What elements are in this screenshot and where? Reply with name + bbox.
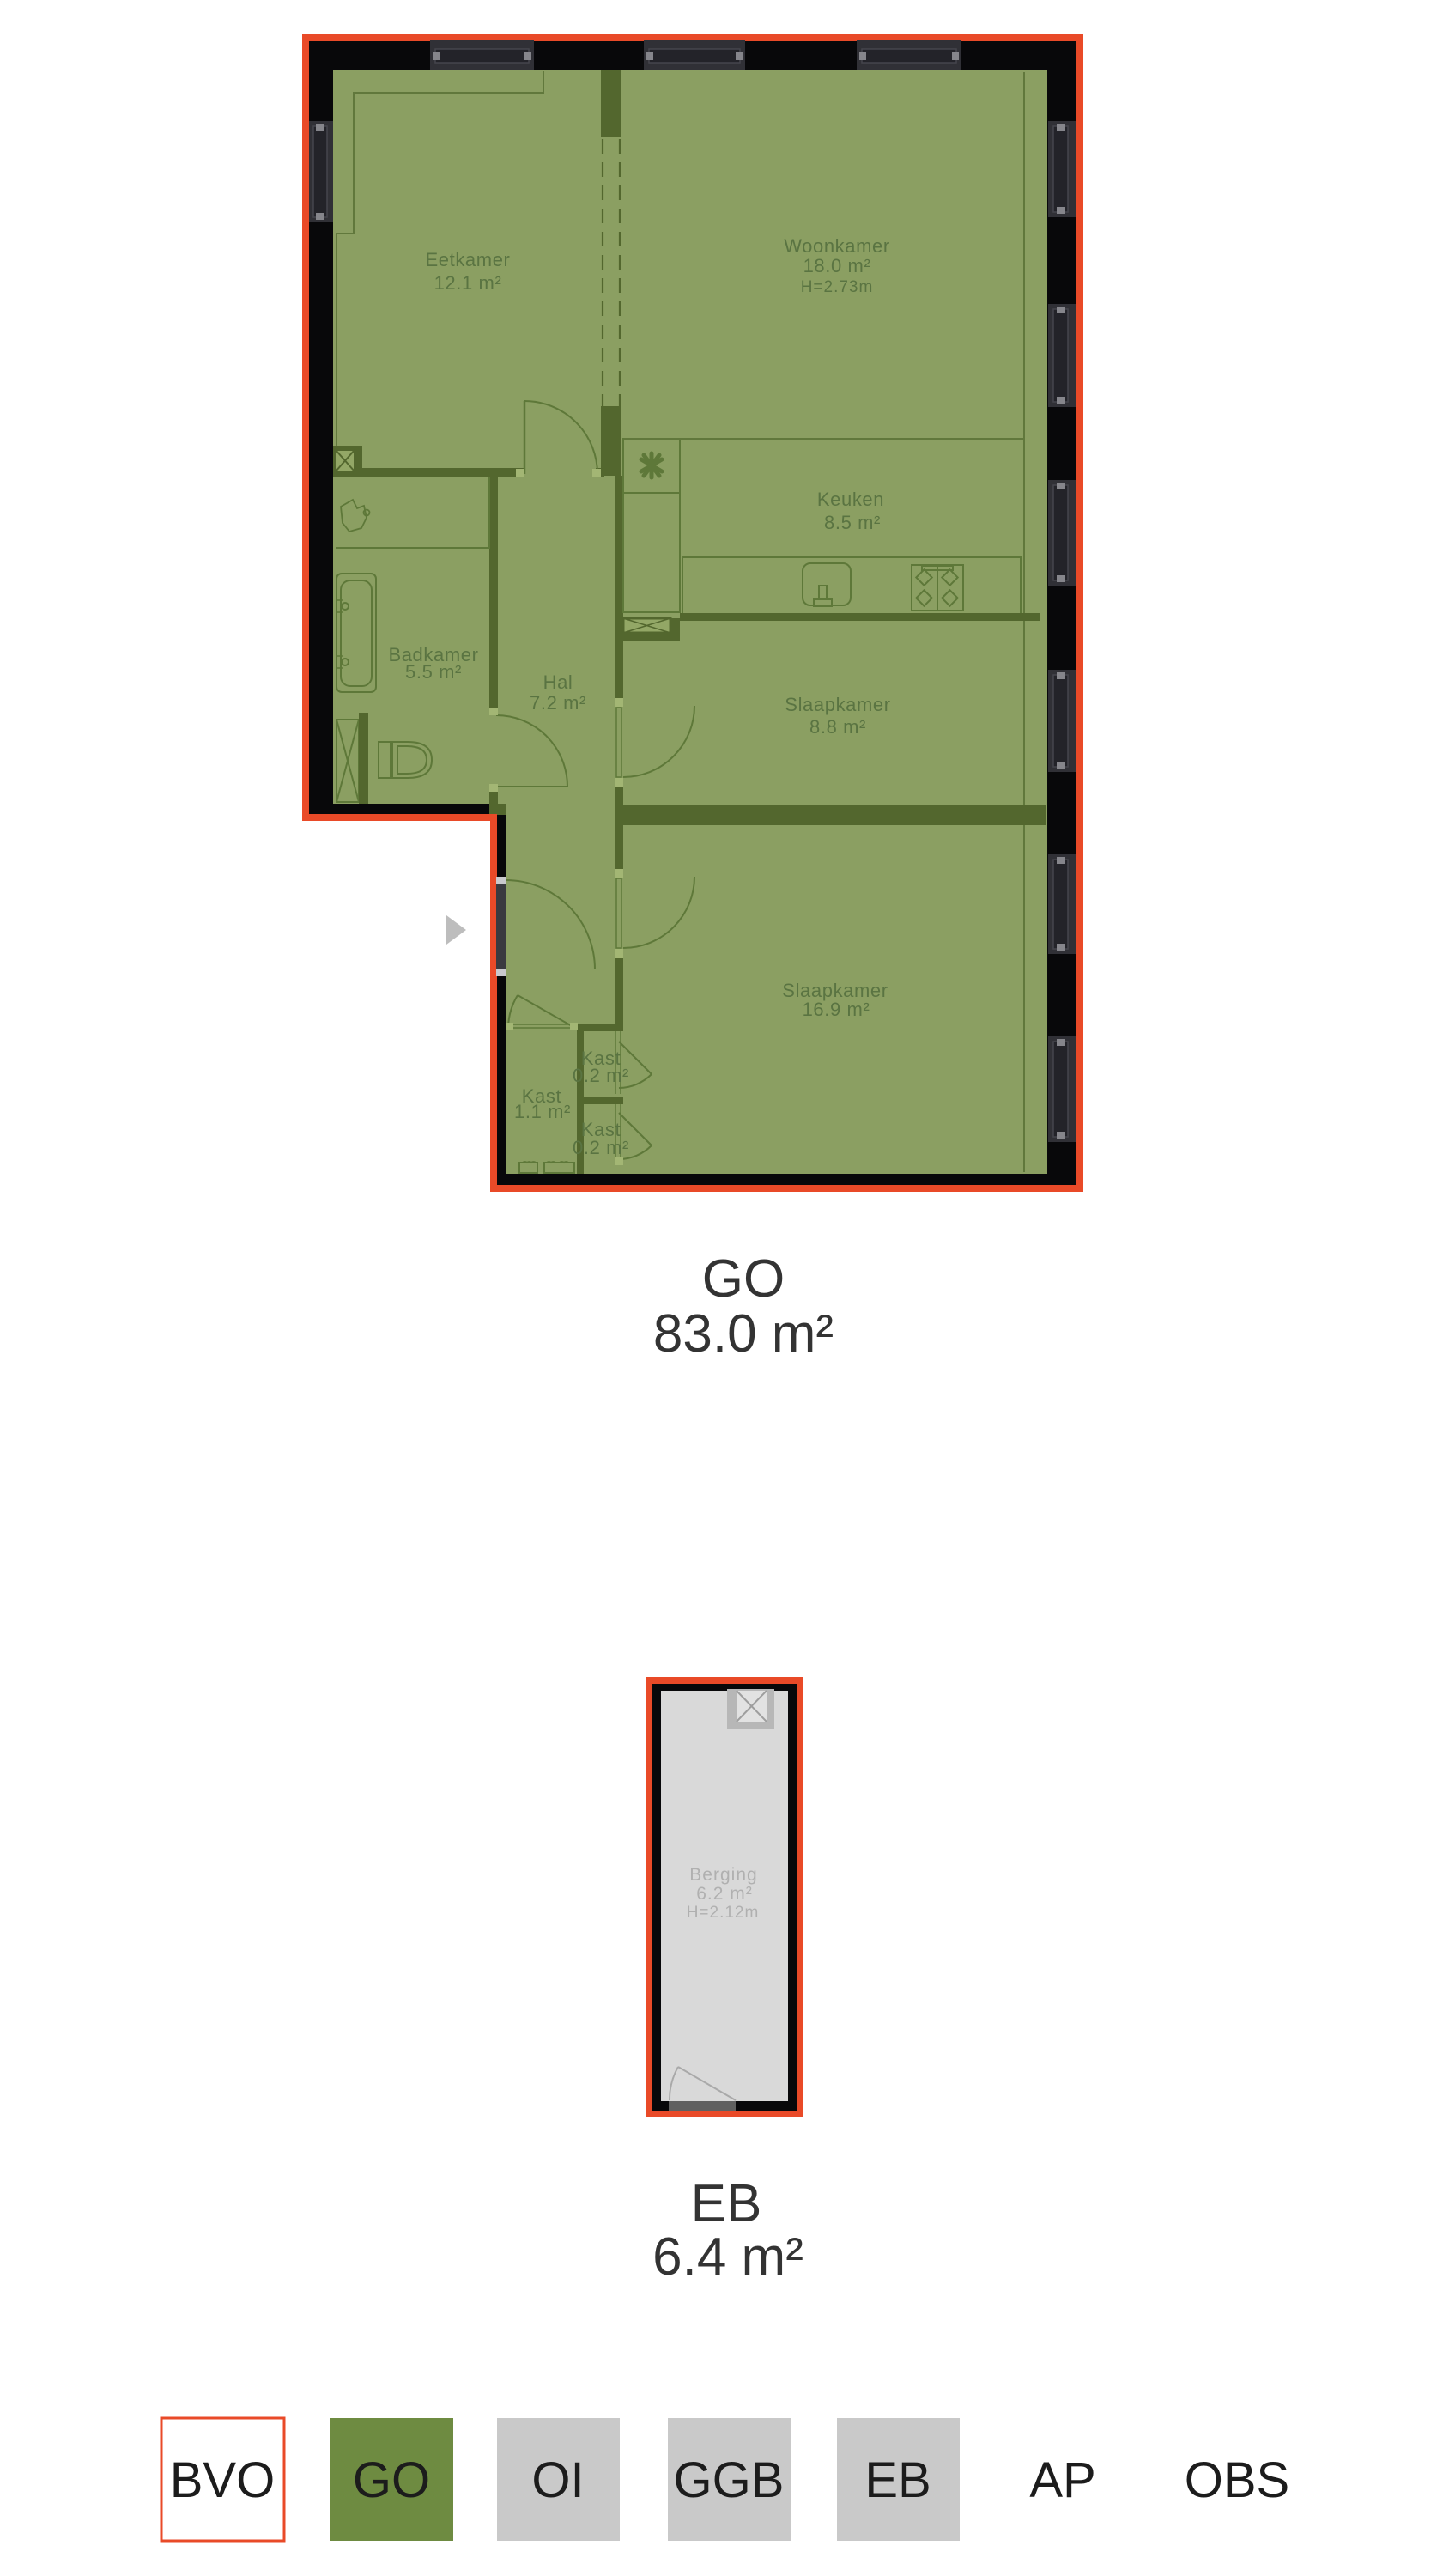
svg-text:8.8 m²: 8.8 m² bbox=[809, 716, 866, 738]
svg-text:OI: OI bbox=[531, 2452, 584, 2508]
svg-text:0.2 m²: 0.2 m² bbox=[573, 1065, 629, 1086]
svg-text:83.0 m²: 83.0 m² bbox=[653, 1304, 834, 1364]
svg-text:Keuken: Keuken bbox=[817, 489, 884, 510]
svg-text:H=2.12m: H=2.12m bbox=[687, 1904, 760, 1922]
svg-text:0.2 m²: 0.2 m² bbox=[573, 1137, 629, 1158]
svg-text:AP: AP bbox=[1029, 2452, 1095, 2508]
svg-text:Berging: Berging bbox=[689, 1865, 757, 1885]
svg-text:EB: EB bbox=[864, 2452, 931, 2508]
svg-text:Slaapkamer: Slaapkamer bbox=[785, 694, 890, 715]
svg-text:Woonkamer: Woonkamer bbox=[784, 235, 890, 257]
svg-text:GO: GO bbox=[353, 2452, 430, 2508]
svg-text:18.0 m²: 18.0 m² bbox=[803, 255, 871, 276]
svg-text:Eetkamer: Eetkamer bbox=[426, 249, 511, 270]
svg-text:EB: EB bbox=[691, 2174, 762, 2233]
svg-text:6.4 m²: 6.4 m² bbox=[652, 2227, 803, 2287]
svg-text:1.1 m²: 1.1 m² bbox=[514, 1101, 571, 1122]
svg-text:Hal: Hal bbox=[543, 671, 573, 693]
svg-text:6.2 m²: 6.2 m² bbox=[696, 1884, 753, 1904]
svg-text:7.2 m²: 7.2 m² bbox=[530, 692, 586, 714]
svg-text:16.9 m²: 16.9 m² bbox=[803, 999, 870, 1020]
svg-text:5.5 m²: 5.5 m² bbox=[405, 661, 462, 683]
svg-text:8.5 m²: 8.5 m² bbox=[824, 512, 881, 533]
svg-text:H=2.73m: H=2.73m bbox=[801, 278, 874, 296]
svg-text:GO: GO bbox=[702, 1249, 785, 1309]
svg-text:GGB: GGB bbox=[674, 2452, 785, 2508]
svg-text:OBS: OBS bbox=[1185, 2452, 1290, 2508]
svg-text:BVO: BVO bbox=[170, 2452, 276, 2508]
svg-text:12.1 m²: 12.1 m² bbox=[434, 272, 502, 294]
